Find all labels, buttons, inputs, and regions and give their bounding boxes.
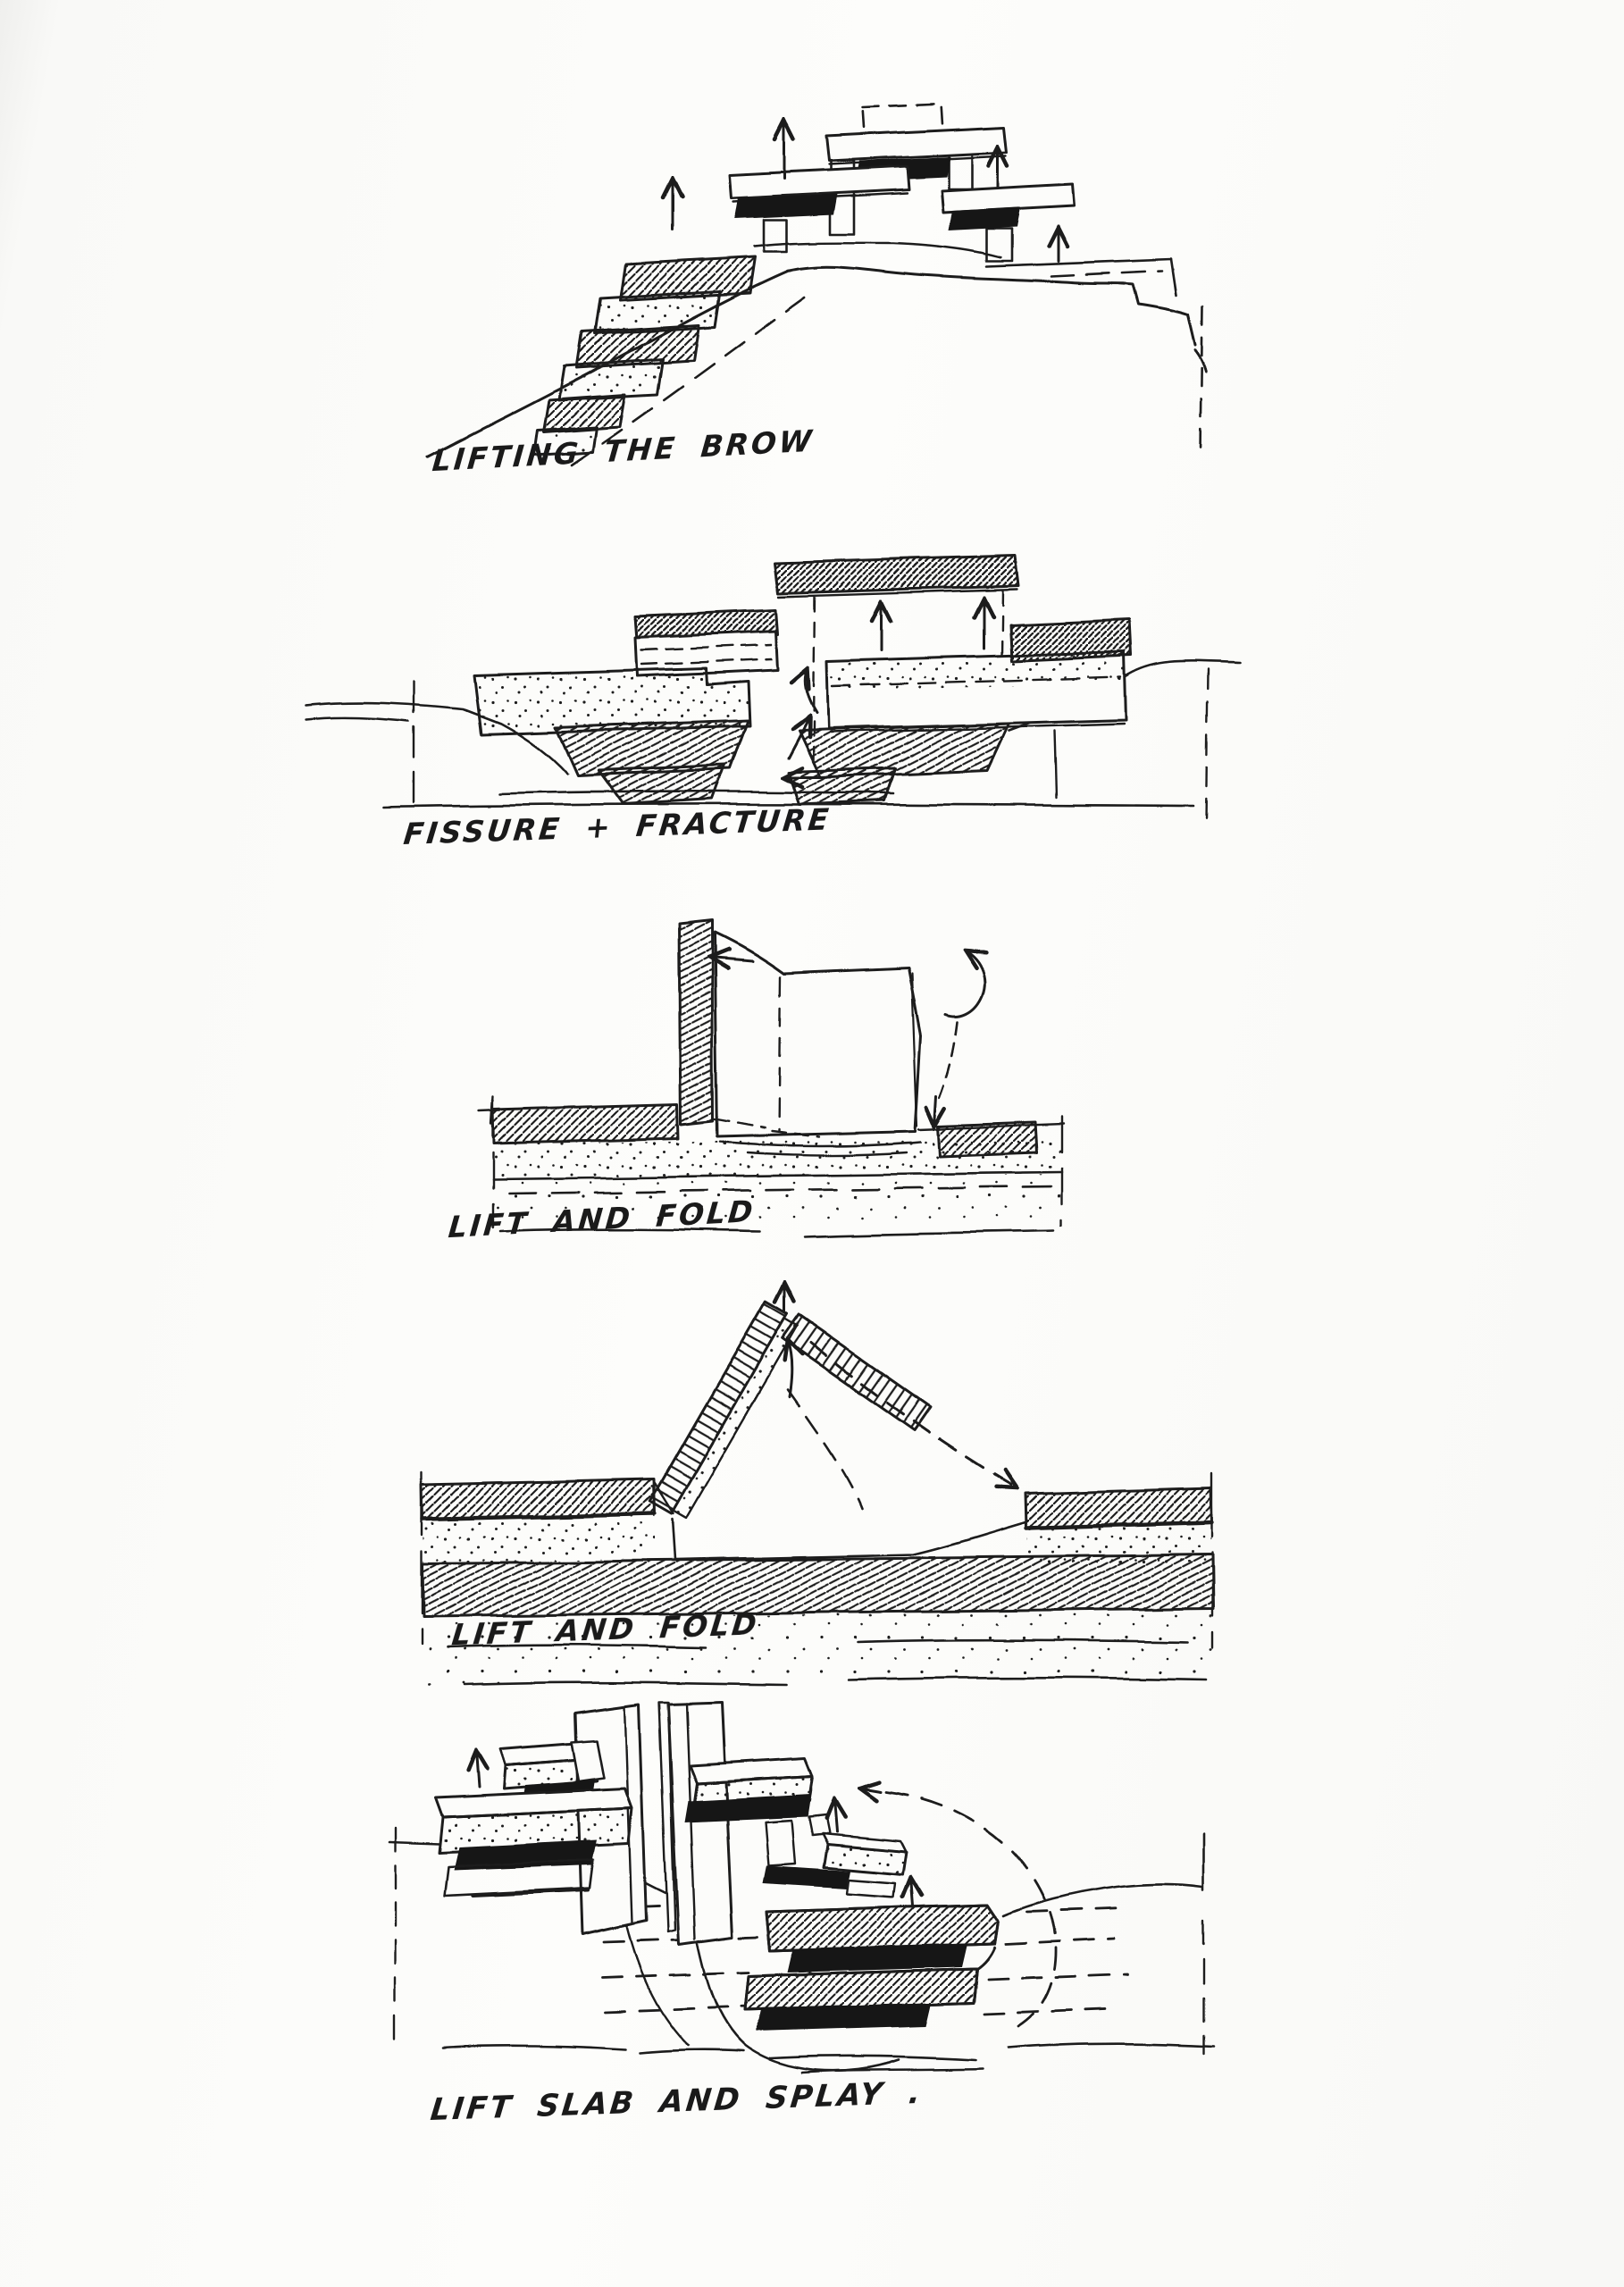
sketch-lifting-the-brow — [427, 104, 1206, 465]
sketch-lift-and-fold-wall — [479, 920, 1063, 1236]
sketches-canvas — [0, 0, 1624, 2287]
sketch-fissure-and-fracture — [306, 556, 1240, 822]
sketch-lift-slab-and-splay — [389, 1703, 1213, 2073]
sketchbook-page: LIFTING THE BROW FISSURE + FRACTURE LIFT… — [0, 0, 1624, 2287]
